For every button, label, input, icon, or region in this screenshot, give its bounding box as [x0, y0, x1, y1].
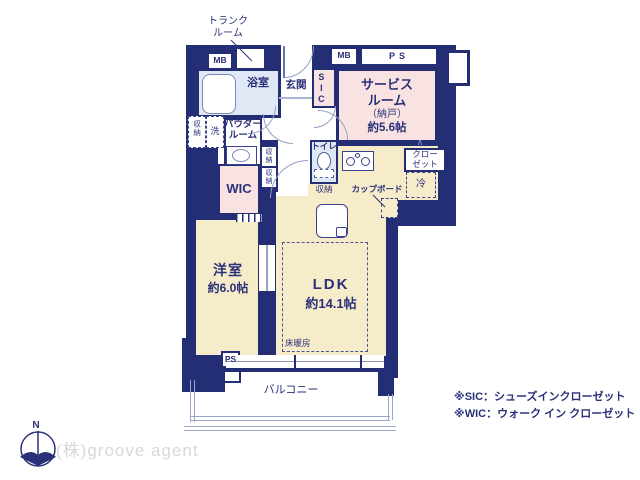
powder-sink-bowl [232, 149, 250, 162]
storage-left-label: 収納 [192, 120, 201, 137]
service-room-label4: 約5.6帖 [336, 122, 438, 135]
wall-left-upper [186, 45, 196, 120]
trunk-room-label: トランク ルーム [198, 16, 258, 39]
balcony-outer-line-2 [184, 430, 396, 431]
western-room-label: 洋室 [197, 262, 259, 278]
closet-line1: クロー [412, 149, 438, 159]
ps-bottom-label: PS [221, 355, 240, 365]
balcony-rail-right-1 [388, 394, 389, 420]
compass-icon [20, 431, 56, 466]
mb-right-label: MB [330, 51, 358, 61]
service-room-label2: ルーム [336, 94, 438, 109]
bath-label: 浴室 [240, 77, 276, 90]
sic-label: SIC [316, 72, 326, 105]
window-mullion-2 [360, 355, 362, 368]
sliding-door-line [266, 245, 268, 291]
note-wic: ※WIC：ウォーク イン クローゼット [454, 408, 640, 421]
wall-kitchen-step [398, 196, 456, 226]
wic-door-hatch [236, 214, 262, 222]
window-mullion-1 [294, 355, 296, 368]
closet-label: クロー ゼット [404, 150, 446, 170]
trunk-room-line2: ルーム [213, 28, 243, 39]
kitchen-faucet [336, 227, 347, 237]
toilet-bowl [317, 152, 331, 170]
entrance-door-arc [284, 46, 314, 78]
washer-label: 洗 [206, 126, 224, 136]
service-room-label1: サービス [336, 78, 438, 93]
western-room-size-label: 約6.0帖 [195, 282, 261, 296]
cupboard-label: カップボード [350, 185, 404, 195]
powder-line1: パウダー [224, 119, 262, 130]
bathtub [202, 74, 236, 114]
ps-top-label: PS [360, 51, 438, 61]
stove-burner-small [355, 153, 360, 158]
service-room-label3: （納戸） [336, 109, 438, 121]
closet-caret: ∧ [412, 137, 428, 147]
floorplan-canvas: トランク ルーム MB MB PS 浴室 玄関 SIC サービス ルーム （納戸… [0, 0, 640, 480]
powder-line2: ルーム [229, 130, 257, 141]
balcony-rail-bottom-2 [190, 420, 390, 421]
stove-burner-right [361, 157, 370, 166]
toilet-label: トイレ [310, 142, 338, 152]
cupboard-box [381, 198, 398, 218]
entrance-label: 玄関 [280, 79, 312, 91]
mb-left-label: MB [207, 56, 233, 66]
wall-bottomleft-b [182, 370, 225, 392]
floor-heating-label: 床暖房 [285, 339, 321, 349]
storage-col2-label: 収納 [264, 169, 272, 185]
balcony-rail-bottom-1 [190, 416, 390, 417]
ldk-size-label: 約14.1帖 [286, 297, 376, 312]
stove-burner-left [346, 157, 355, 166]
powder-room-label: パウダー ルーム [223, 120, 263, 142]
entrance-step-line [279, 97, 312, 99]
closet-line2: ゼット [412, 159, 438, 169]
right-wall-notch [446, 50, 470, 86]
toilet-tank [314, 169, 334, 178]
company-watermark: (株)groove agent [56, 441, 256, 461]
wic-label: WIC [218, 182, 260, 197]
trunk-room-line1: トランク [208, 16, 248, 27]
balcony-outer-line-1 [184, 426, 396, 427]
note-sic: ※SIC：シューズインクローゼット [454, 391, 640, 404]
trunk-room-box [235, 47, 266, 70]
entrance-door-leaf [283, 46, 285, 78]
balcony-rail-right-2 [392, 394, 393, 420]
fridge-label: 冷 [406, 179, 436, 191]
ldk-label: LDK [286, 276, 376, 293]
storage-col1-label: 収納 [264, 148, 272, 164]
storage-below-toilet-label: 収納 [309, 185, 339, 195]
compass-n-label: N [28, 420, 44, 432]
wall-ldk-right [386, 196, 398, 378]
balcony-small-box [223, 370, 241, 383]
balcony-label: バルコニー [256, 384, 326, 397]
